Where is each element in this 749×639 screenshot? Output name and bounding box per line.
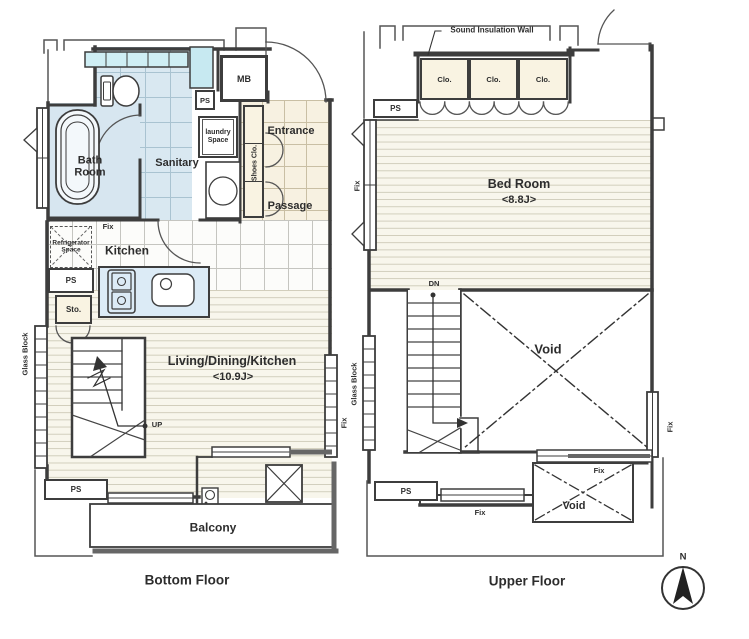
kitchen-counter (98, 266, 210, 318)
fix-label-bottom-window: Fix (475, 509, 486, 517)
fix-label-upper-left: Fix (353, 181, 362, 192)
room-label-ldk: Living/Dining/Kitchen (168, 354, 296, 368)
room-label-balcony: Balcony (190, 521, 237, 534)
ps-box-upper-bottom: PS (374, 481, 438, 501)
ps-label: PS (66, 276, 77, 285)
ps-box-bottom: PS (44, 479, 108, 500)
labels-layer: MB PS laundry Space Shoes Clo. Refrigera… (0, 0, 749, 639)
room-label-sanitary: Sanitary (155, 157, 198, 169)
void-label-lower: Void (562, 500, 585, 512)
glass-block-label-upper: Glass Block (350, 363, 359, 406)
sound-insulation-wall-label: Sound Insulation Wall (450, 27, 533, 36)
shoes-closet-box: Shoes Clo. (243, 105, 264, 218)
room-label-entrance: Entrance (267, 125, 314, 137)
ps-box-top: PS (195, 90, 215, 110)
up-label: UP (152, 421, 162, 429)
mb-box: MB (220, 55, 268, 102)
laundry-label: laundry Space (203, 129, 233, 144)
dn-label: DN (429, 280, 440, 288)
mb-label: MB (237, 74, 251, 84)
room-label-bedroom: Bed Room (488, 177, 551, 191)
ps-box-mid: PS (48, 268, 94, 293)
room-size-ldk: <10.9J> (213, 371, 253, 383)
room-size-bedroom: <8.8J> (502, 194, 536, 206)
closet-box-1: Clo. (420, 58, 469, 100)
compass-north-label: N (680, 553, 687, 564)
closet-box-2: Clo. (469, 58, 518, 100)
laundry-box: laundry Space (198, 116, 238, 158)
glass-block-label-left: Glass Block (21, 333, 30, 376)
void-label-upper: Void (534, 343, 561, 358)
closet-label: Clo. (486, 75, 500, 84)
room-label-passage: Passage (268, 200, 313, 212)
closet-label: Clo. (536, 75, 550, 84)
fix-label-upper-right: Fix (666, 422, 675, 433)
ps-box-upper-top: PS (373, 99, 418, 118)
fix-label-kitchen: Fix (103, 223, 114, 231)
ps-label: PS (390, 104, 401, 113)
storage-box: Sto. (55, 295, 92, 324)
ps-label: PS (401, 487, 412, 496)
floor-plan-canvas: MB PS laundry Space Shoes Clo. Refrigera… (0, 0, 749, 639)
bottom-floor-title: Bottom Floor (145, 572, 230, 587)
upper-floor-title: Upper Floor (489, 573, 566, 588)
refrigerator-label: Refrigerator Space (51, 240, 91, 255)
ps-label: PS (200, 96, 210, 105)
fix-label-right-window: Fix (340, 418, 349, 429)
closet-box-3: Clo. (518, 58, 568, 100)
closet-label: Clo. (437, 75, 451, 84)
storage-label: Sto. (66, 305, 81, 314)
room-label-kitchen: Kitchen (105, 244, 149, 257)
fix-label-lower-void: Fix (594, 467, 605, 475)
room-label-bathroom: Bath Room (65, 155, 115, 180)
refrigerator-box: Refrigerator Space (50, 226, 92, 268)
shoes-closet-label: Shoes Clo. (252, 145, 259, 181)
stove-sink-icons (100, 268, 208, 316)
ps-label: PS (71, 485, 82, 494)
